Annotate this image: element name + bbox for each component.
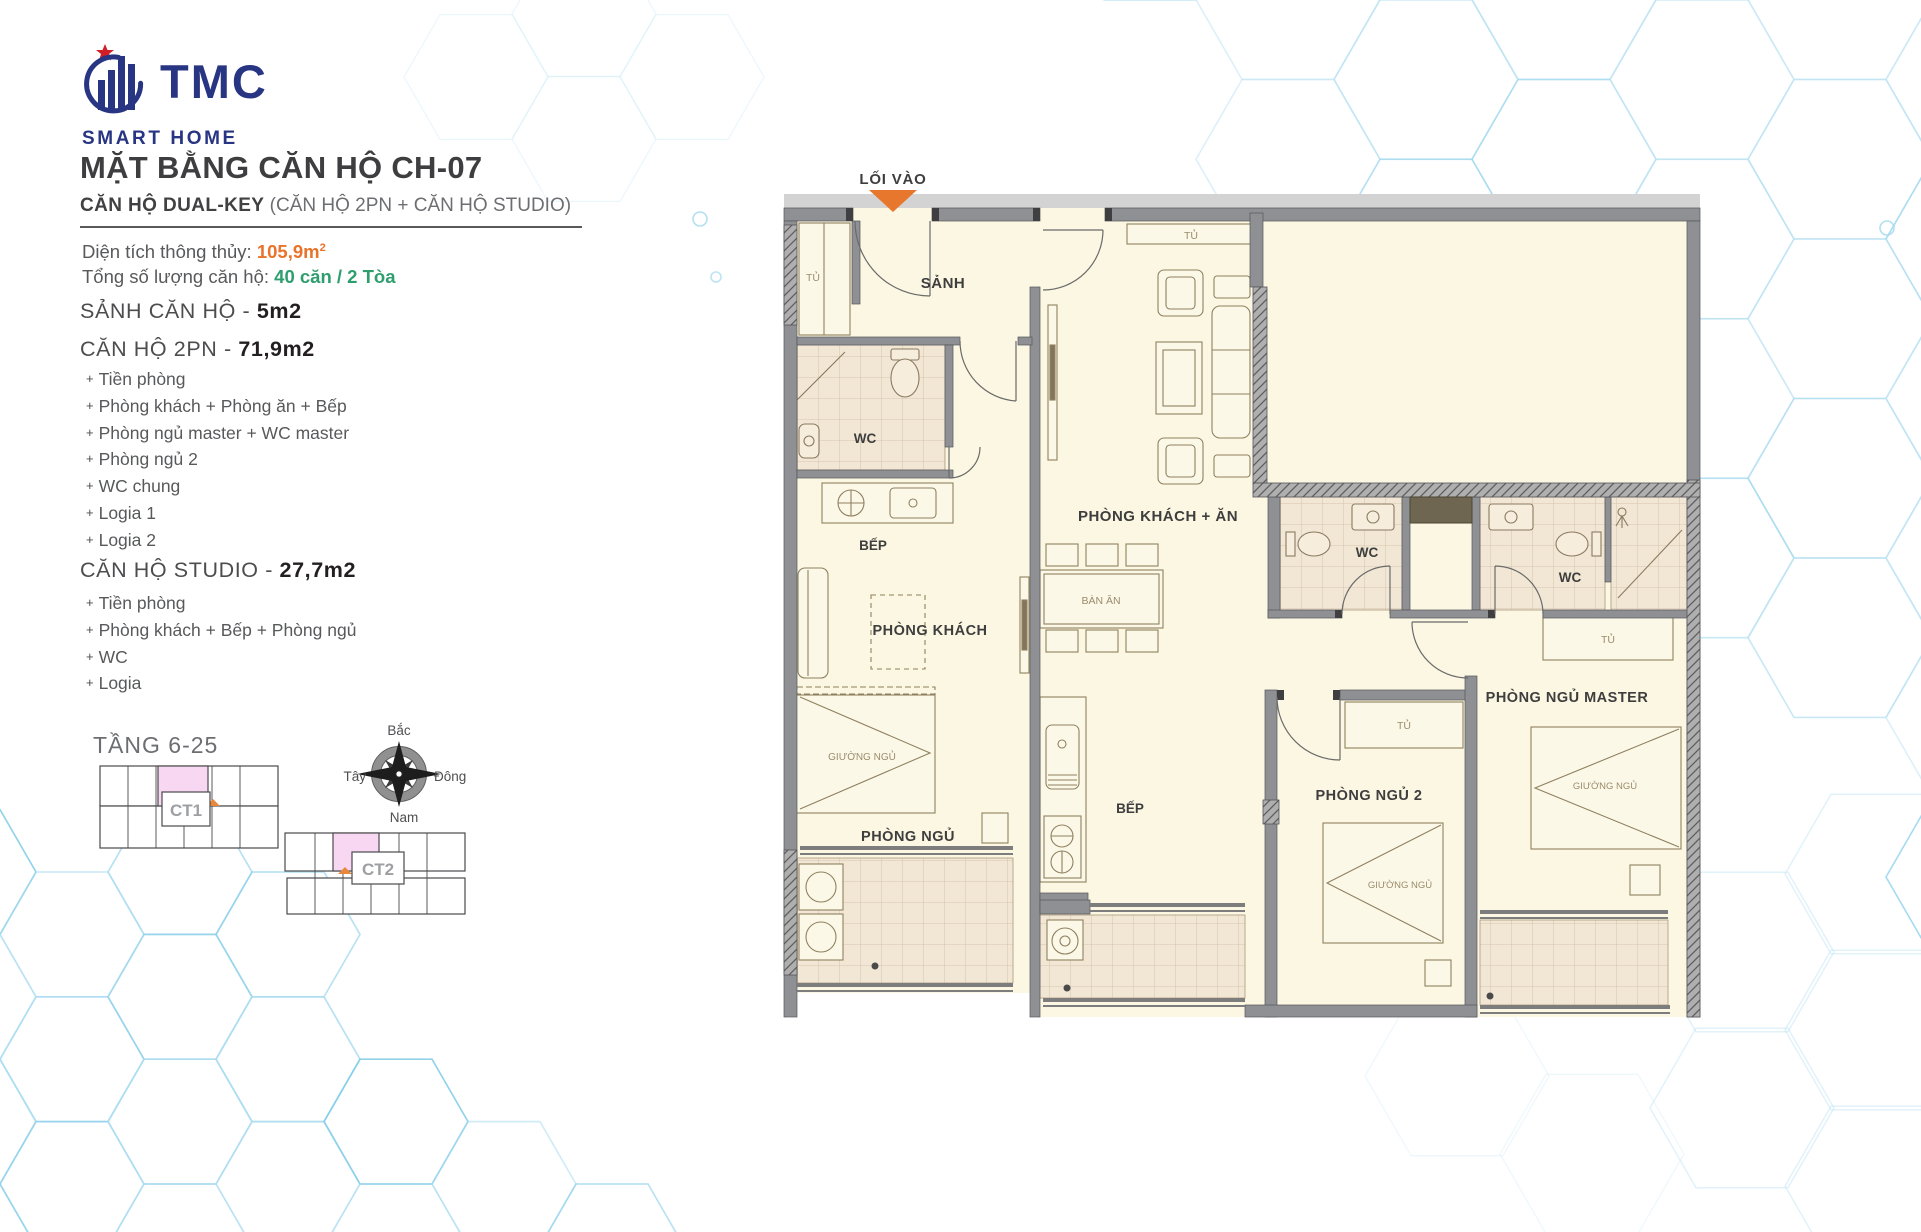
- section-sanh: SẢNH CĂN HỘ - 5m2: [80, 299, 302, 324]
- room-label-phong-khach: PHÒNG KHÁCH: [872, 621, 987, 639]
- section-2pn: CĂN HỘ 2PN - 71,9m2: [80, 337, 315, 362]
- section-sanh-area: 5m2: [257, 299, 302, 323]
- bed-label-master: GIƯỜNG NGỦ: [1573, 780, 1637, 792]
- logo-brand: TMC: [160, 54, 268, 109]
- section-studio: CĂN HỘ STUDIO - 27,7m2: [80, 558, 356, 583]
- section-2pn-area: 71,9m2: [238, 337, 315, 361]
- room-label-wc-chung: WC: [1356, 545, 1379, 560]
- list-item: +Logia: [86, 671, 356, 698]
- closet-label: TỦ: [806, 271, 820, 284]
- tmc-logo-icon: [82, 36, 154, 126]
- room-label-ngu-master: PHÒNG NGỦ MASTER: [1486, 688, 1649, 706]
- section-2pn-name: CĂN HỘ 2PN: [80, 337, 217, 361]
- list-item: +Logia 1: [86, 501, 349, 528]
- room-label-khach-an: PHÒNG KHÁCH + ĂN: [1078, 507, 1238, 525]
- total-units-row: Tổng số lượng căn hộ: 40 căn / 2 Tòa: [82, 264, 396, 289]
- list-item: +Tiền phòng: [86, 367, 349, 394]
- net-area-label: Diện tích thông thủy:: [82, 241, 257, 262]
- net-area-value: 105,9m: [257, 241, 320, 262]
- room-label-wc-master: WC: [1559, 570, 1582, 585]
- room-label-bep-studio: BẾP: [859, 538, 887, 553]
- info-panel: TMC SMART HOME MẶT BẰNG CĂN HỘ CH-07 CĂN…: [0, 0, 640, 1232]
- bed-label-ngu2: GIƯỜNG NGỦ: [1368, 879, 1432, 891]
- tmc-logo: TMC SMART HOME: [82, 36, 268, 150]
- section-2pn-list: +Tiền phòng+Phòng khách + Phòng ăn + Bếp…: [86, 367, 349, 555]
- bed-label-studio: GIƯỜNG NGỦ: [828, 750, 896, 763]
- net-area-row: Diện tích thông thủy: 105,9m2: [82, 236, 396, 264]
- list-item: +WC: [86, 645, 356, 672]
- stats-block: Diện tích thông thủy: 105,9m2 Tổng số lư…: [82, 236, 396, 289]
- room-label-sanh: SẢNH: [921, 275, 966, 292]
- room-label-wc-studio: WC: [854, 431, 877, 446]
- subtitle-bold: CĂN HỘ DUAL-KEY: [80, 195, 264, 216]
- list-item: +Phòng khách + Bếp + Phòng ngủ: [86, 618, 356, 645]
- total-units-value: 40 căn / 2 Tòa: [274, 266, 395, 287]
- list-item: +Phòng khách + Phòng ăn + Bếp: [86, 394, 349, 421]
- floor-range-label: TẦNG 6-25: [93, 732, 218, 759]
- section-studio-list: +Tiền phòng+Phòng khách + Bếp + Phòng ng…: [86, 591, 356, 698]
- section-studio-name: CĂN HỘ STUDIO: [80, 558, 259, 582]
- closet-label-ngu2: TỦ: [1397, 719, 1411, 732]
- list-item: +Phòng ngủ 2: [86, 447, 349, 474]
- list-item: +Logia 2: [86, 528, 349, 555]
- room-label-ngu-2: PHÒNG NGỦ 2: [1315, 786, 1422, 804]
- page-title: MẶT BẰNG CĂN HỘ CH-07: [80, 150, 482, 186]
- entrance-label: LỐI VÀO: [859, 170, 926, 188]
- closet-label-master: TỦ: [1601, 633, 1615, 646]
- master-logia-floor: [1480, 920, 1668, 1005]
- total-units-label: Tổng số lượng căn hộ:: [82, 266, 274, 287]
- technical-shaft: [1410, 497, 1472, 523]
- net-area-sup: 2: [320, 242, 326, 254]
- divider-line: [80, 226, 582, 228]
- list-item: +WC chung: [86, 474, 349, 501]
- dining-table-label: BÀN ĂN: [1081, 594, 1120, 607]
- subtitle-rest: (CĂN HỘ 2PN + CĂN HỘ STUDIO): [264, 195, 571, 216]
- closet-label-living: TỦ: [1184, 229, 1198, 242]
- logo-tagline: SMART HOME: [82, 128, 268, 150]
- list-item: +Phòng ngủ master + WC master: [86, 421, 349, 448]
- room-label-bep-2pn: BẾP: [1116, 801, 1144, 816]
- room-label-phong-ngu: PHÒNG NGỦ: [861, 827, 955, 845]
- list-item: +Tiền phòng: [86, 591, 356, 618]
- outside-corridor: [784, 194, 1700, 209]
- page-subtitle: CĂN HỘ DUAL-KEY (CĂN HỘ 2PN + CĂN HỘ STU…: [80, 195, 571, 217]
- section-sanh-name: SẢNH CĂN HỘ: [80, 299, 236, 323]
- section-studio-area: 27,7m2: [280, 558, 357, 582]
